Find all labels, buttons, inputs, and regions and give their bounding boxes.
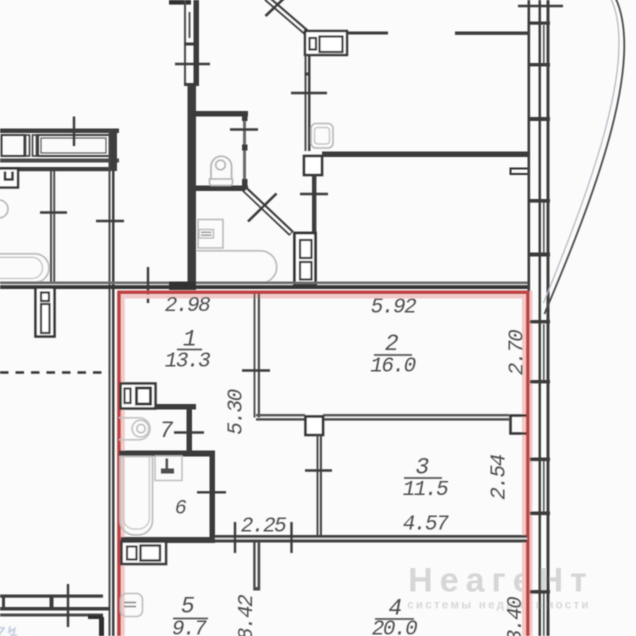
svg-text:2.25: 2.25 [241,516,287,539]
svg-text:НеагеНт: НеагеНт [408,562,594,600]
svg-text:1: 1 [183,327,195,353]
svg-text:2.70: 2.70 [507,330,530,375]
svg-text:5.92: 5.92 [371,297,416,320]
svg-text:11.5: 11.5 [403,479,449,502]
svg-text:6: 6 [175,498,187,521]
svg-text:2: 2 [385,331,399,357]
svg-text:7: 7 [159,418,173,444]
svg-text:3: 3 [415,455,429,481]
svg-text:2.54: 2.54 [489,454,512,499]
svg-text:системы недвижимости: системы недвижимости [407,600,591,612]
svg-text:2.98: 2.98 [165,295,210,318]
svg-text:20.0: 20.0 [372,619,417,636]
svg-text:8.42: 8.42 [236,595,259,636]
svg-text:Z↯: Z↯ [0,625,19,636]
svg-text:13.3: 13.3 [165,351,210,374]
svg-text:9.7: 9.7 [172,619,207,636]
svg-text:5.30: 5.30 [226,389,249,434]
svg-text:4.57: 4.57 [403,514,449,537]
svg-text:3.40: 3.40 [505,597,528,636]
svg-text:16.0: 16.0 [370,356,415,379]
svg-text:5: 5 [181,594,195,620]
